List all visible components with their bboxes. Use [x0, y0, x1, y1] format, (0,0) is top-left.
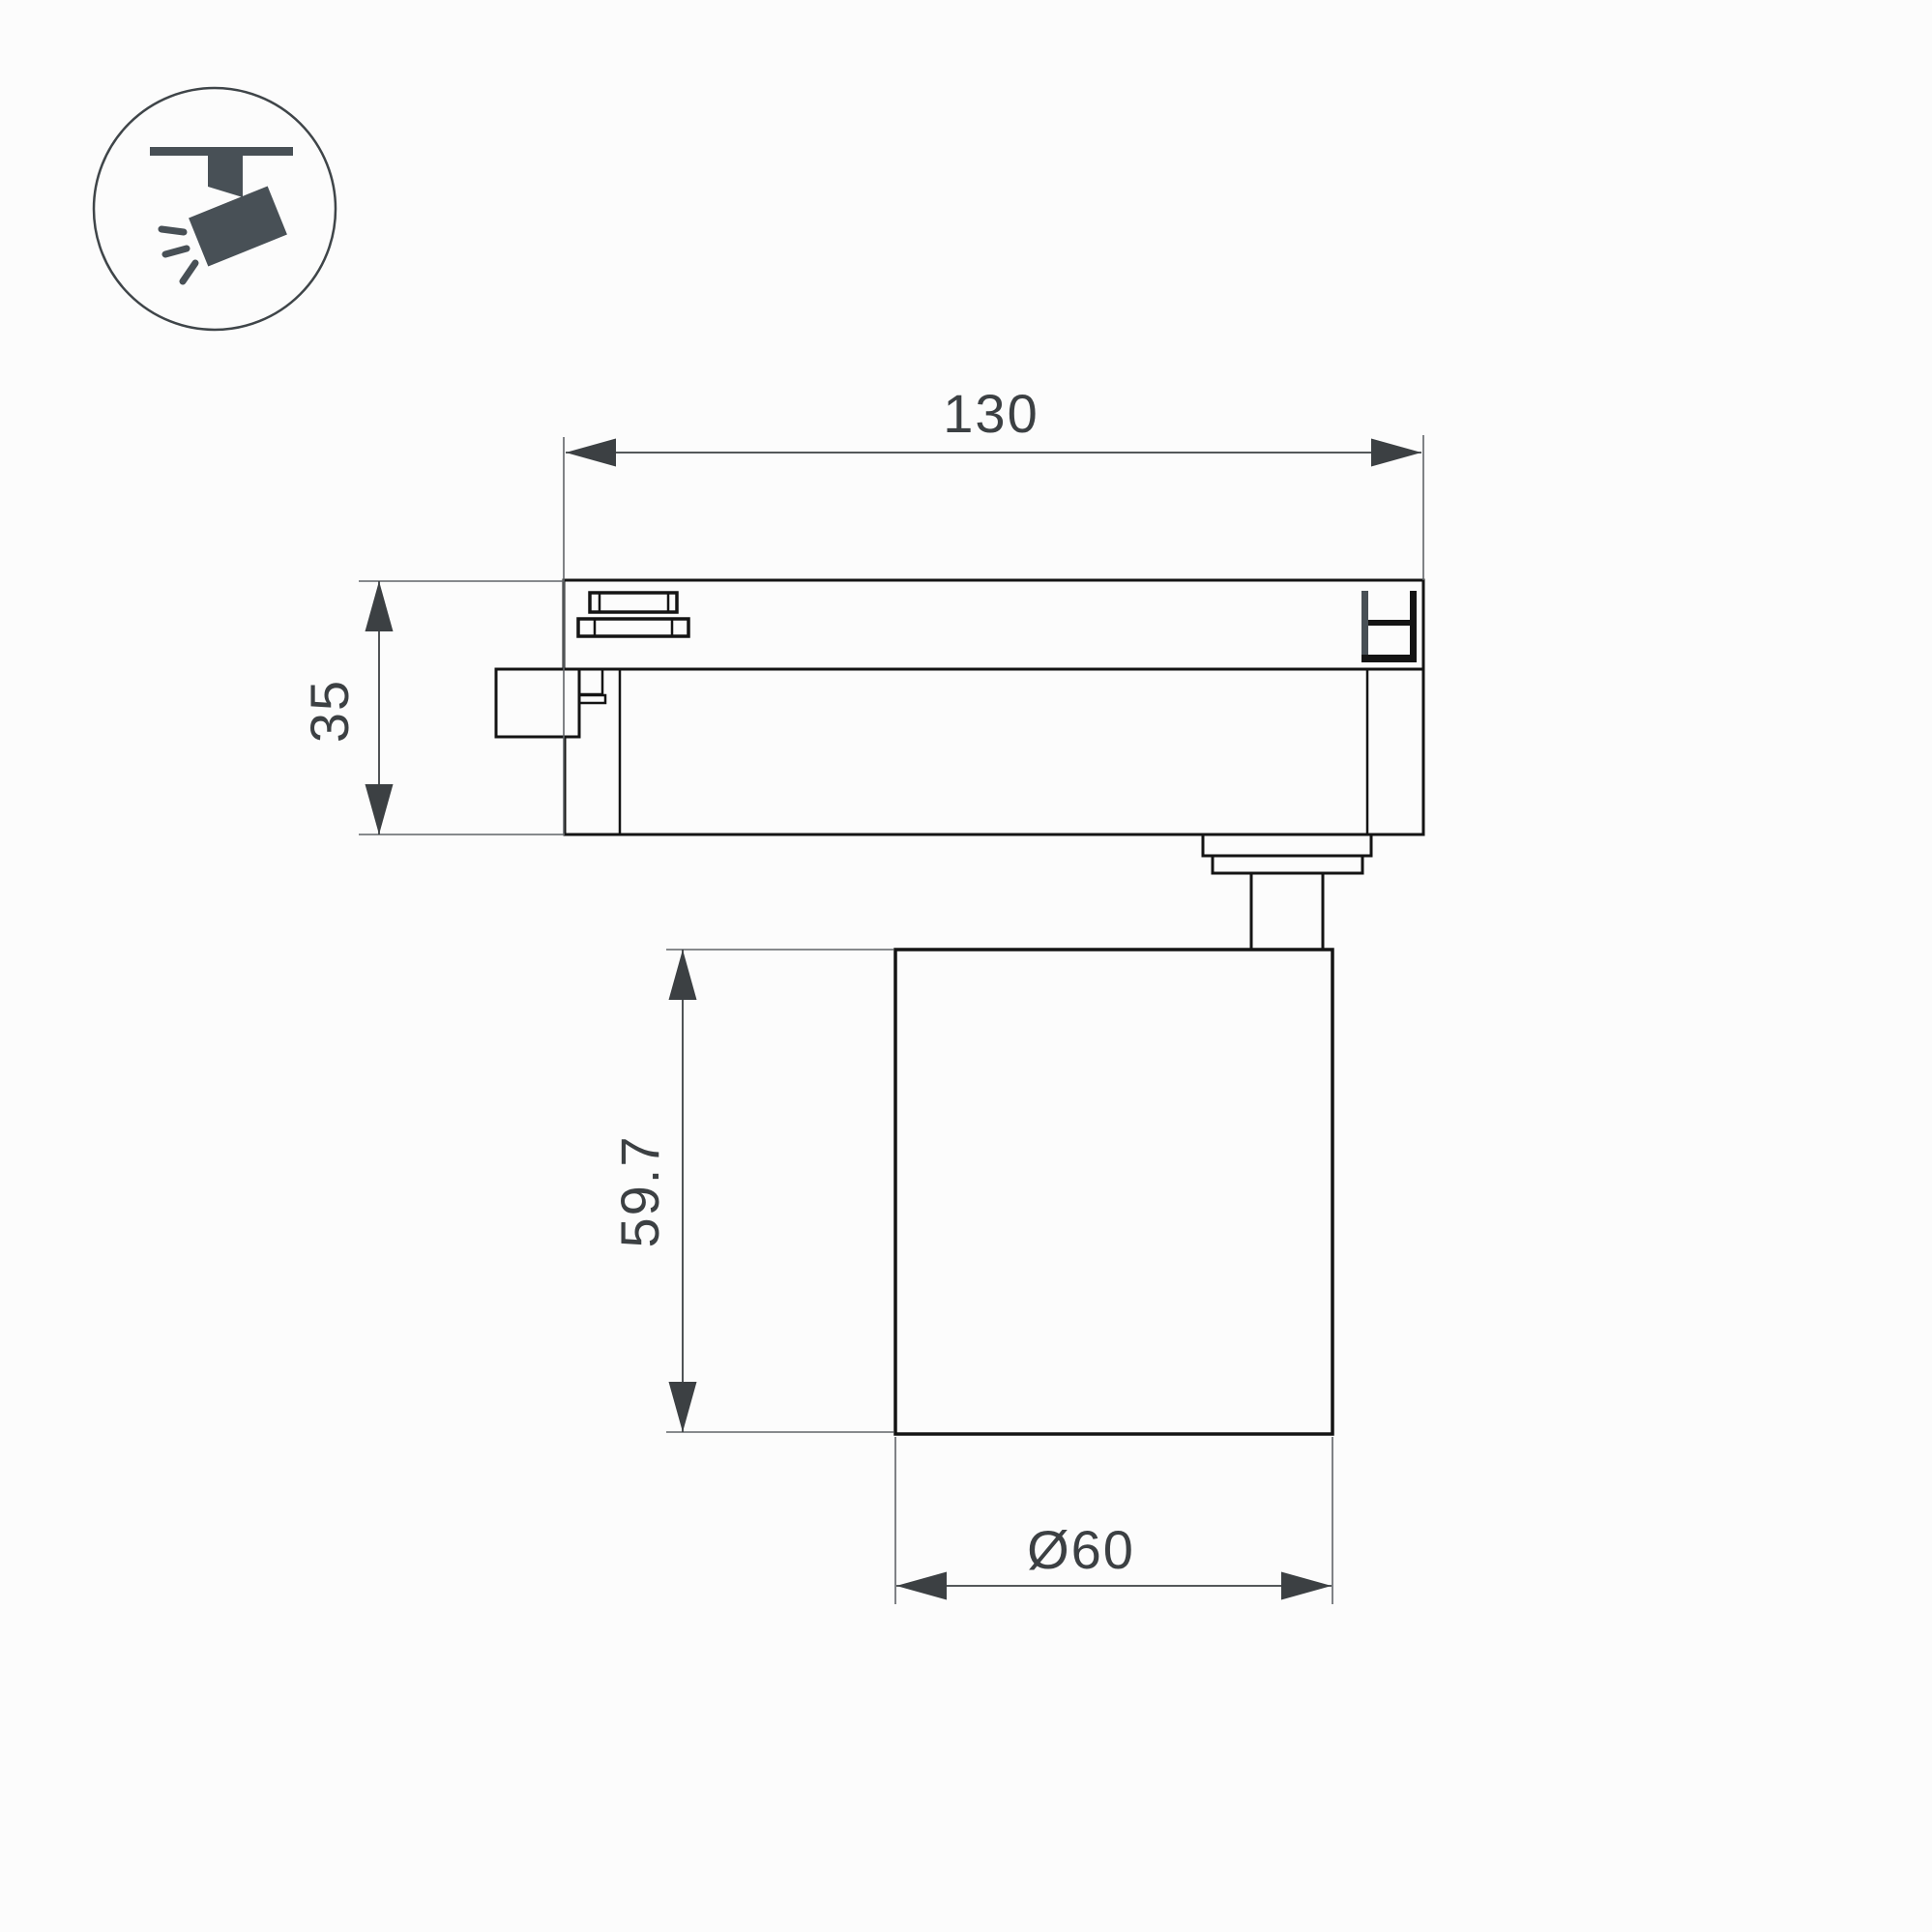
dim-35-arrow-top [366, 581, 394, 631]
dim-60-arrow-right [1281, 1572, 1332, 1600]
adapter-top-strip [564, 580, 1423, 669]
dim-diameter-60: Ø60 [895, 1437, 1332, 1604]
dim-width-label: 130 [943, 383, 1039, 444]
technical-drawing-canvas: 130 35 59.7 Ø60 [0, 0, 1932, 1932]
lamp-head-cylinder [895, 950, 1332, 1434]
switch-box [496, 669, 579, 737]
swivel-flange-upper [1203, 834, 1371, 856]
spotlight-head-view [895, 950, 1332, 1434]
dim-59-arrow-bottom [669, 1382, 697, 1432]
dim-59-arrow-top [669, 950, 697, 1000]
dim-track-height-label: 35 [299, 679, 360, 743]
track-spotlight-icon [94, 88, 336, 330]
dim-130-arrow-right [1371, 439, 1421, 467]
dim-body-height-label: 59.7 [609, 1135, 670, 1248]
swivel-flange-lower [1213, 856, 1362, 873]
dim-body-height-59-7: 59.7 [609, 950, 893, 1432]
track-adapter-view [496, 580, 1423, 950]
dim-130-arrow-left [566, 439, 616, 467]
swivel-stem [1251, 873, 1323, 950]
dim-diameter-label: Ø60 [1027, 1519, 1135, 1580]
dim-35-arrow-bottom [366, 784, 394, 834]
adapter-housing [565, 669, 1423, 834]
dimension-drawing-page: 130 35 59.7 Ø60 [0, 0, 1932, 1932]
dim-60-arrow-left [896, 1572, 947, 1600]
icon-track-bar [150, 147, 293, 156]
